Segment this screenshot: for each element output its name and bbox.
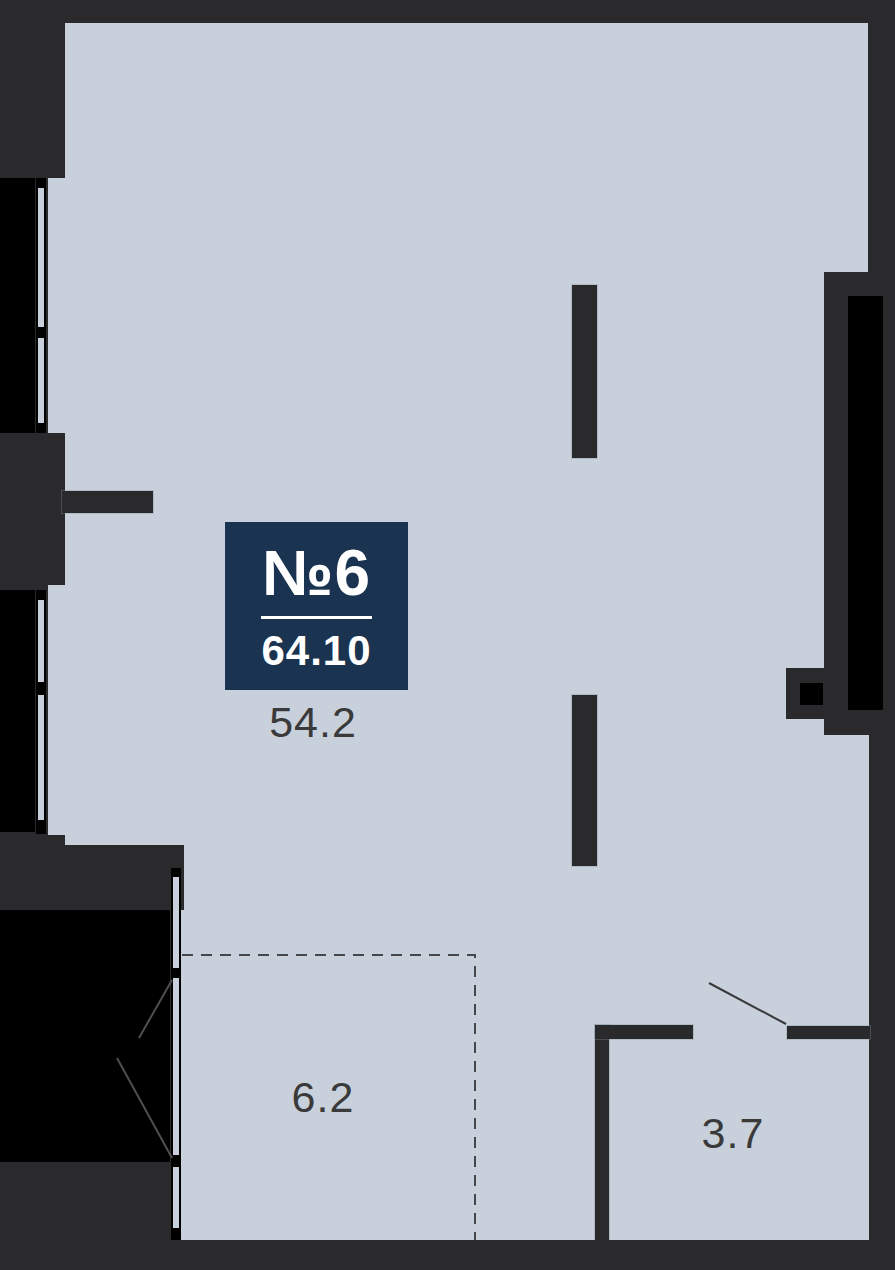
wall-bath-top-right bbox=[787, 1026, 870, 1039]
area-label-zone: 6.2 bbox=[292, 1076, 355, 1119]
floor-inset-window-lower bbox=[48, 585, 65, 835]
wall-balcony-bottom bbox=[0, 1162, 170, 1240]
wall-partition-lower bbox=[572, 695, 597, 866]
window-mullion bbox=[36, 820, 46, 834]
window-mullion bbox=[36, 590, 46, 600]
window-mullion bbox=[171, 1155, 181, 1167]
window-left-lower bbox=[0, 590, 35, 832]
window-mullion bbox=[171, 968, 181, 978]
window-mullion bbox=[36, 423, 46, 433]
wall-bath-top-left bbox=[595, 1025, 693, 1039]
unit-number: №6 bbox=[262, 541, 371, 605]
window-frame-left-lower bbox=[36, 590, 46, 834]
wall-bottom bbox=[0, 1240, 895, 1270]
window-left-upper bbox=[0, 178, 35, 433]
floor-plan: №6 64.10 54.2 6.2 3.7 bbox=[0, 0, 895, 1270]
window-mullion bbox=[36, 178, 46, 188]
unit-total-area: 64.10 bbox=[261, 630, 371, 672]
unit-badge[interactable]: №6 64.10 bbox=[225, 522, 408, 690]
window-mullion bbox=[171, 1228, 181, 1240]
balcony-door-frame bbox=[171, 868, 181, 1240]
window-right bbox=[848, 296, 883, 710]
wall-bath-left bbox=[595, 1025, 609, 1240]
window-frame-left-upper bbox=[36, 178, 46, 433]
wall-balcony-top bbox=[0, 845, 184, 910]
window-mullion bbox=[171, 868, 181, 877]
area-label-main: 54.2 bbox=[269, 701, 357, 744]
window-mullion bbox=[36, 682, 46, 695]
window-mullion bbox=[36, 327, 46, 338]
area-label-bath: 3.7 bbox=[702, 1112, 765, 1155]
window-right-small bbox=[800, 683, 823, 705]
badge-divider bbox=[261, 616, 372, 619]
wall-partition-upper bbox=[572, 285, 597, 458]
wall-stub-left bbox=[62, 491, 153, 513]
floor-area-bottom bbox=[181, 735, 869, 1240]
floor-area-top bbox=[65, 23, 868, 272]
floor-inset-window-upper bbox=[48, 178, 65, 433]
balcony-opening bbox=[0, 910, 170, 1162]
